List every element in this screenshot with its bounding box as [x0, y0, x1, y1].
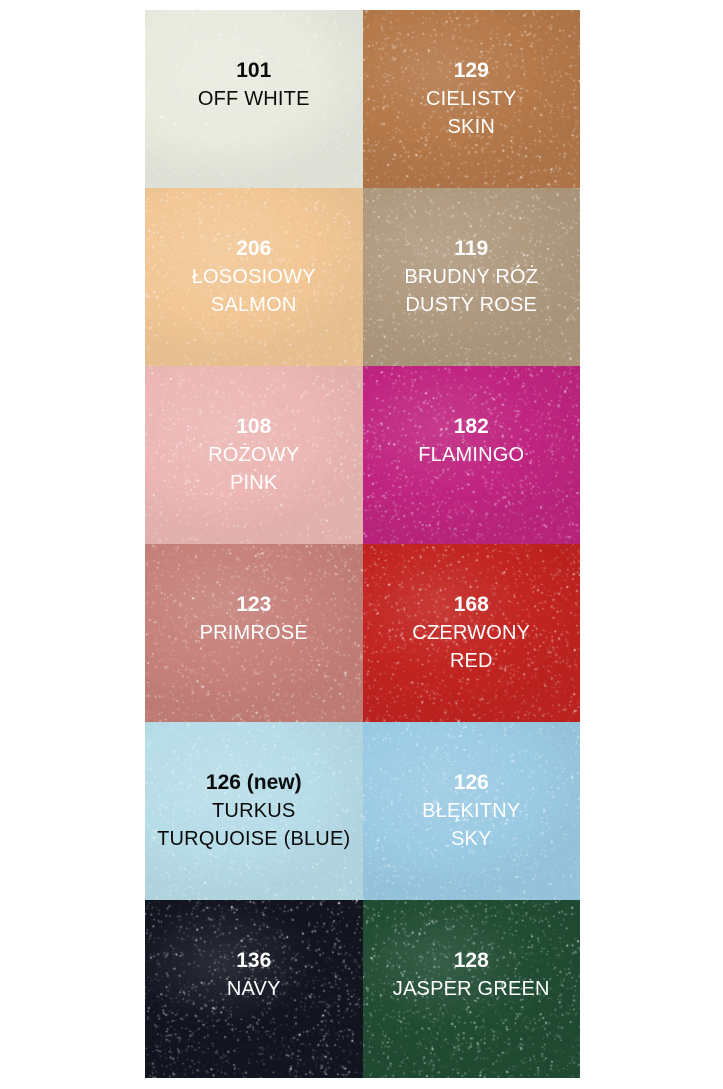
swatch-name-line: CZERWONY — [412, 619, 530, 647]
swatch-name-line: TURKUS — [157, 797, 350, 825]
swatch-name-line: SKY — [422, 825, 520, 853]
swatch-primrose: 123 PRIMROSE — [145, 544, 363, 722]
swatch-name-line: OFF WHITE — [198, 85, 310, 113]
swatch-jasper-green: 128 JASPER GREEN — [363, 900, 581, 1078]
swatch-label: 101 OFF WHITE — [198, 57, 310, 141]
swatch-number: 108 — [208, 413, 299, 441]
swatch-czerwony-red: 168 CZERWONY RED — [363, 544, 581, 722]
swatch-label: 168 CZERWONY RED — [412, 591, 530, 675]
swatch-name-line: BŁĘKITNY — [422, 797, 520, 825]
swatch-name-line: NAVY — [227, 975, 281, 1003]
swatch-turkus-turquoise: 126 (new) TURKUS TURQUOISE (BLUE) — [145, 722, 363, 900]
swatch-label: 123 PRIMROSE — [200, 591, 308, 675]
swatch-name-line: DUSTY ROSE — [404, 291, 538, 319]
swatch-number: 136 — [227, 947, 281, 975]
swatch-rozowy-pink: 108 RÓŻOWY PINK — [145, 366, 363, 544]
swatch-lososiowy-salmon: 206 ŁOSOSIOWY SALMON — [145, 188, 363, 366]
swatch-name-line — [198, 113, 310, 141]
swatch-name-line: SKIN — [426, 113, 517, 141]
swatch-name-line: SALMON — [192, 291, 316, 319]
swatch-number: 206 — [192, 235, 316, 263]
swatch-name-line: JASPER GREEN — [393, 975, 550, 1003]
swatch-navy: 136 NAVY — [145, 900, 363, 1078]
swatch-name-line: PRIMROSE — [200, 619, 308, 647]
swatch-label: 126 (new) TURKUS TURQUOISE (BLUE) — [157, 769, 350, 853]
swatch-number: 168 — [412, 591, 530, 619]
swatch-grid: 101 OFF WHITE 129 CIELISTY SKIN 206 ŁOSO… — [145, 10, 580, 1078]
swatch-label: 128 JASPER GREEN — [393, 947, 550, 1031]
swatch-name-line: RED — [412, 647, 530, 675]
swatch-label: 119 BRUDNY RÓŻ DUSTY ROSE — [404, 235, 538, 319]
swatch-blekitny-sky: 126 BŁĘKITNY SKY — [363, 722, 581, 900]
swatch-number: 126 — [422, 769, 520, 797]
swatch-name-line — [227, 1003, 281, 1031]
swatch-name-line: BRUDNY RÓŻ — [404, 263, 538, 291]
swatch-name-line — [418, 469, 524, 497]
swatch-off-white: 101 OFF WHITE — [145, 10, 363, 188]
swatch-label: 182 FLAMINGO — [418, 413, 524, 497]
swatch-number: 101 — [198, 57, 310, 85]
swatch-number: 129 — [426, 57, 517, 85]
swatch-name-line: ŁOSOSIOWY — [192, 263, 316, 291]
swatch-label: 206 ŁOSOSIOWY SALMON — [192, 235, 316, 319]
swatch-name-line: FLAMINGO — [418, 441, 524, 469]
swatch-label: 108 RÓŻOWY PINK — [208, 413, 299, 497]
swatch-name-line — [200, 647, 308, 675]
color-chart-page: 101 OFF WHITE 129 CIELISTY SKIN 206 ŁOSO… — [0, 0, 723, 1089]
swatch-number: 182 — [418, 413, 524, 441]
swatch-number: 119 — [404, 235, 538, 263]
swatch-name-line: RÓŻOWY — [208, 441, 299, 469]
swatch-name-line: TURQUOISE (BLUE) — [157, 825, 350, 853]
swatch-brudny-roz-dusty-rose: 119 BRUDNY RÓŻ DUSTY ROSE — [363, 188, 581, 366]
swatch-name-line: CIELISTY — [426, 85, 517, 113]
swatch-cielisty-skin: 129 CIELISTY SKIN — [363, 10, 581, 188]
swatch-label: 136 NAVY — [227, 947, 281, 1031]
swatch-number: 123 — [200, 591, 308, 619]
swatch-label: 126 BŁĘKITNY SKY — [422, 769, 520, 853]
swatch-number: 126 (new) — [157, 769, 350, 797]
swatch-name-line: PINK — [208, 469, 299, 497]
swatch-name-line — [393, 1003, 550, 1031]
swatch-label: 129 CIELISTY SKIN — [426, 57, 517, 141]
swatch-number: 128 — [393, 947, 550, 975]
swatch-flamingo: 182 FLAMINGO — [363, 366, 581, 544]
